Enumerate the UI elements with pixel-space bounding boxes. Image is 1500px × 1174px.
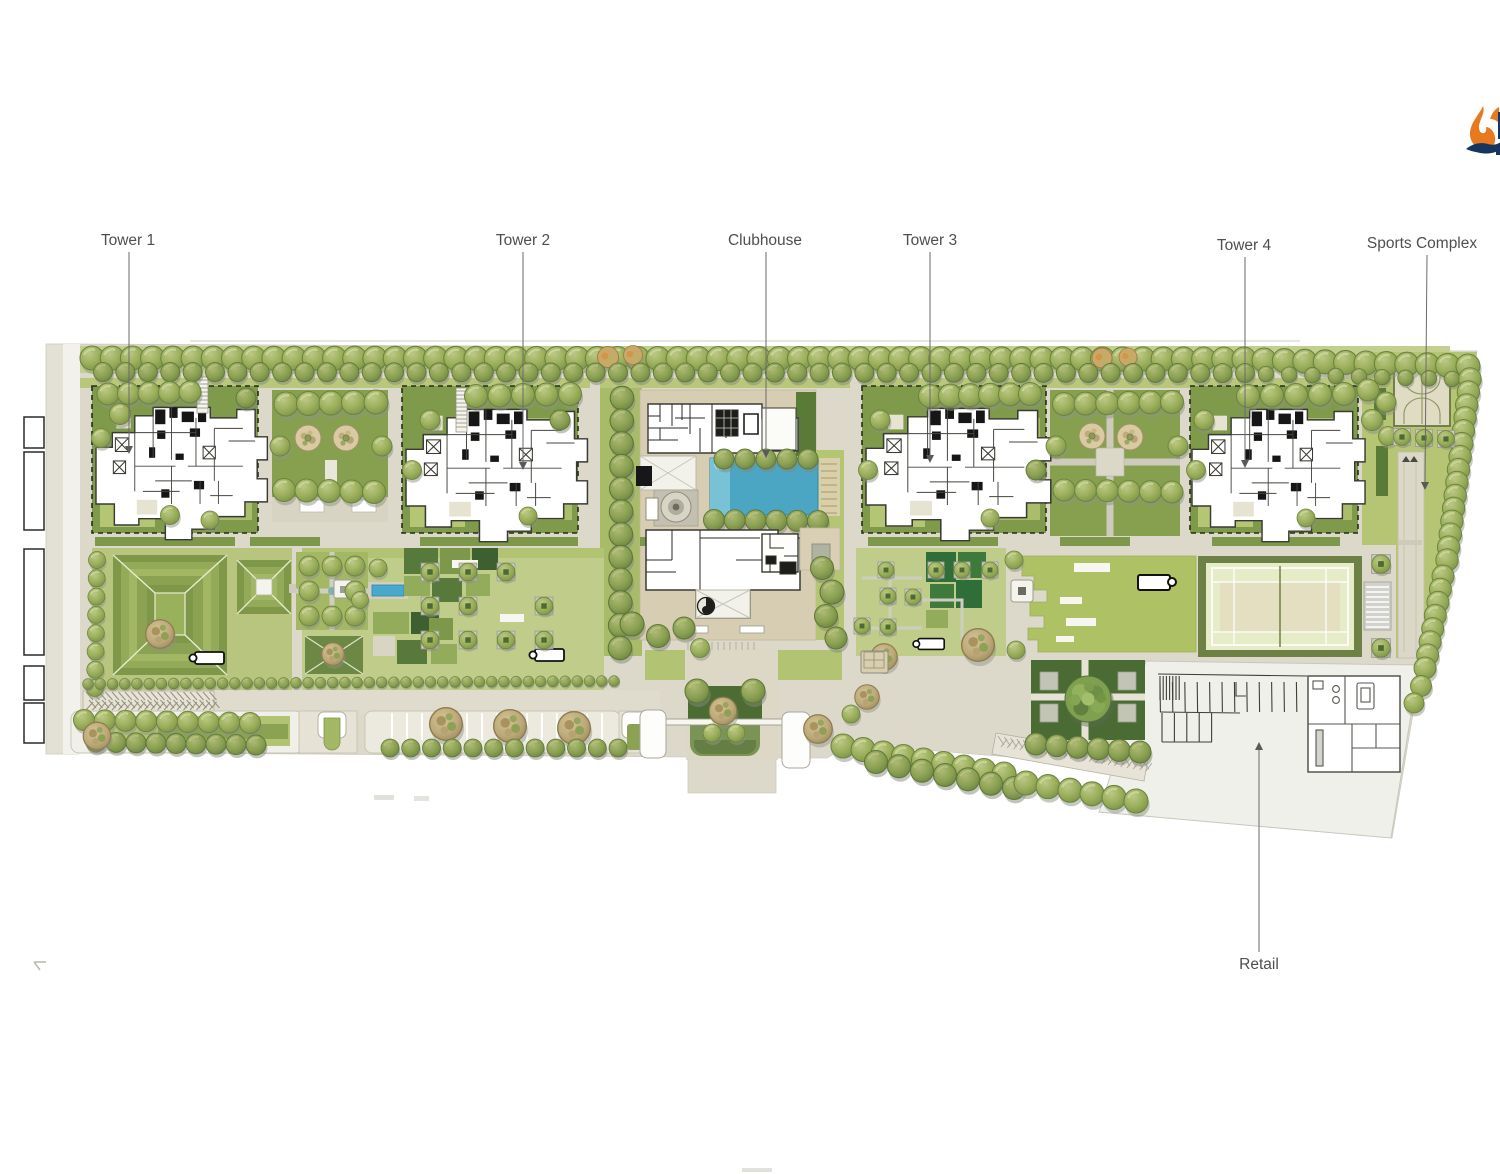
svg-text:Sports Complex: Sports Complex [1367, 235, 1478, 252]
svg-text:Retail: Retail [1239, 956, 1279, 973]
svg-text:Tower 1: Tower 1 [101, 232, 155, 249]
svg-text:Tower 4: Tower 4 [1217, 237, 1272, 254]
svg-text:Tower 2: Tower 2 [496, 232, 550, 249]
svg-text:Clubhouse: Clubhouse [728, 232, 802, 249]
svg-text:Tower 3: Tower 3 [903, 232, 957, 249]
